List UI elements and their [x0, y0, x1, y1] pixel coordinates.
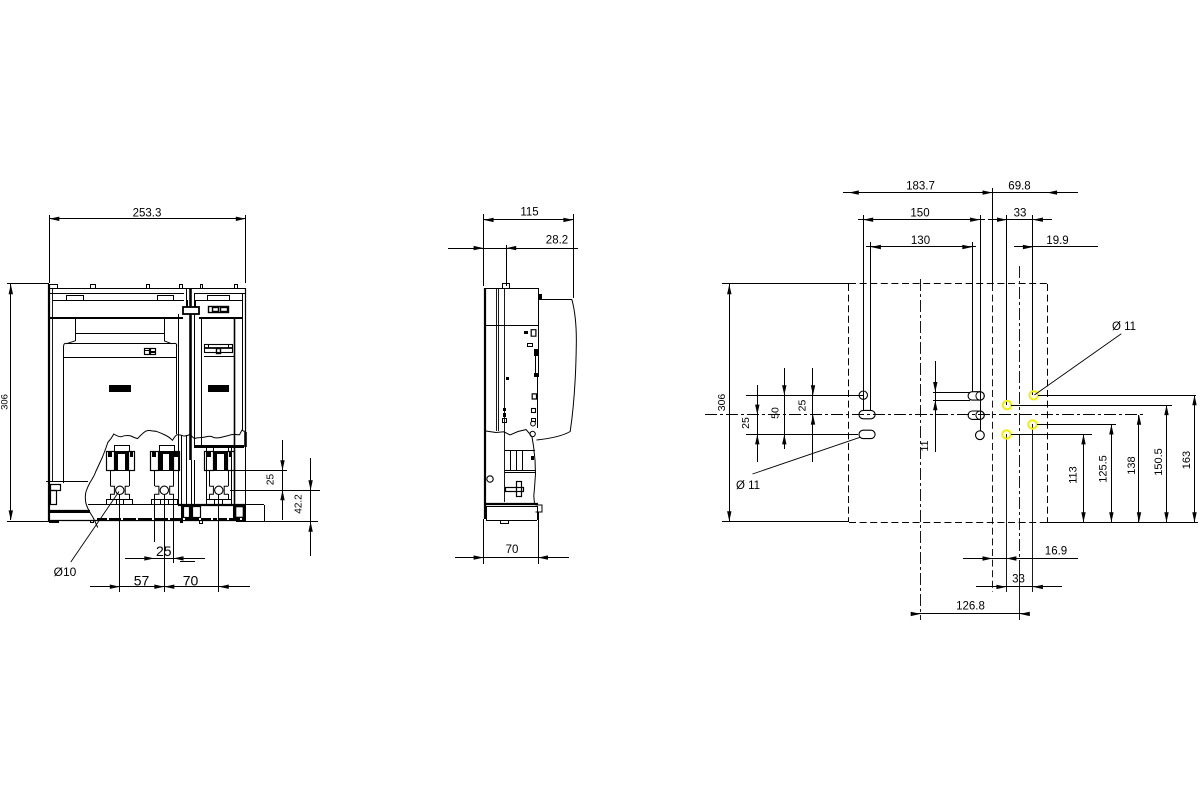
svg-text:125.5: 125.5	[1098, 455, 1110, 483]
svg-text:Ø 11: Ø 11	[1112, 321, 1136, 333]
svg-text:Ø10: Ø10	[54, 565, 77, 579]
svg-text:70: 70	[506, 544, 519, 556]
svg-text:163: 163	[1181, 451, 1193, 469]
svg-text:69.8: 69.8	[1008, 181, 1030, 193]
svg-text:306: 306	[716, 394, 728, 412]
svg-text:150: 150	[910, 208, 929, 220]
svg-text:50: 50	[770, 407, 782, 419]
svg-text:11: 11	[919, 440, 931, 451]
svg-text:70: 70	[183, 573, 199, 589]
svg-text:126.8: 126.8	[956, 601, 985, 613]
svg-text:113: 113	[1068, 466, 1080, 484]
svg-text:25: 25	[740, 417, 752, 429]
svg-text:25: 25	[156, 543, 172, 559]
svg-text:130: 130	[911, 235, 930, 247]
svg-text:19.9: 19.9	[1046, 235, 1068, 247]
svg-text:253.3: 253.3	[133, 208, 162, 220]
svg-text:115: 115	[520, 207, 538, 219]
svg-text:57: 57	[134, 573, 150, 589]
svg-text:33: 33	[1012, 574, 1025, 586]
svg-text:Ø 11: Ø 11	[736, 480, 760, 492]
svg-text:42.2: 42.2	[294, 494, 305, 514]
svg-text:33: 33	[1014, 208, 1027, 220]
svg-text:183.7: 183.7	[906, 181, 935, 193]
svg-text:16.9: 16.9	[1045, 546, 1067, 558]
svg-text:138: 138	[1126, 456, 1138, 474]
svg-text:25: 25	[266, 474, 277, 486]
svg-text:28.2: 28.2	[546, 235, 568, 247]
svg-text:306: 306	[0, 394, 11, 410]
svg-text:25: 25	[797, 400, 809, 412]
svg-text:150.5: 150.5	[1153, 448, 1165, 476]
